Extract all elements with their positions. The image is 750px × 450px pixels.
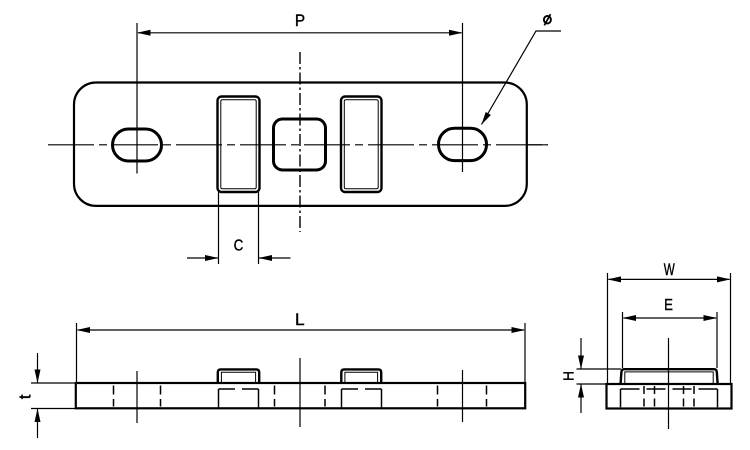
svg-text:C: C: [234, 238, 244, 255]
svg-text:P: P: [295, 12, 305, 30]
svg-text:t: t: [17, 394, 35, 399]
svg-text:H: H: [561, 371, 578, 381]
svg-text:W: W: [664, 261, 675, 279]
svg-text:E: E: [664, 297, 673, 314]
svg-text:L: L: [295, 311, 305, 329]
